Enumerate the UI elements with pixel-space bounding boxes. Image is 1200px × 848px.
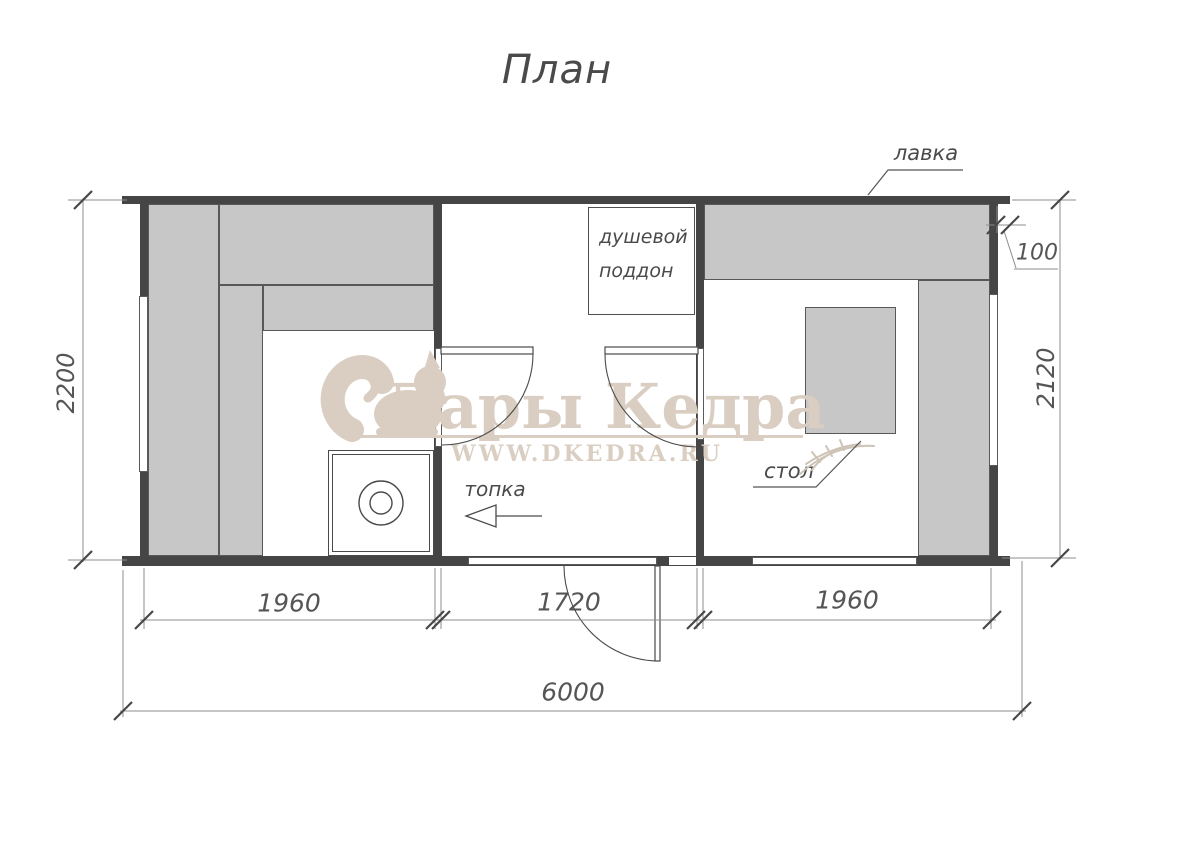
watermark: Дары Кедра WWW.DKEDRA.RU xyxy=(0,0,1200,848)
watermark-underline xyxy=(345,435,803,438)
watermark-url: WWW.DKEDRA.RU xyxy=(451,441,723,467)
cedar-branch-icon xyxy=(795,432,885,482)
floor-plan-canvas: Дары Кедра WWW.DKEDRA.RU душевой поддон xyxy=(0,0,1200,848)
watermark-brand: Дары Кедра xyxy=(382,370,825,443)
